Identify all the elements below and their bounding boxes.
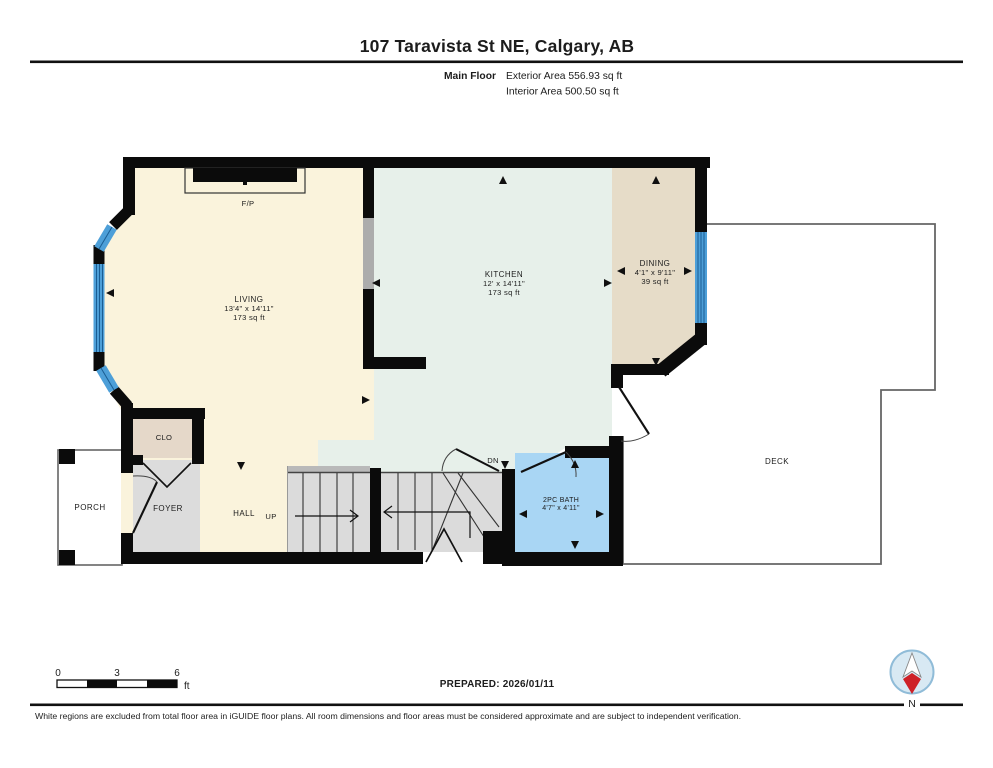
dn-label: DN [487,456,499,465]
living-area: 173 sq ft [233,313,265,322]
scale-tick-0: 0 [55,668,61,679]
fireplace-label: F/P [242,199,255,208]
deck-door-swing [619,387,649,441]
deck-label: DECK [765,457,789,466]
compass-north-label: N [908,698,916,710]
kitchen-dims: 12' x 14'11" [483,279,525,288]
dining-dims: 4'1" x 9'11" [635,268,675,277]
dining-label: DINING [640,259,671,268]
footer-disclaimer: White regions are excluded from total fl… [35,711,741,721]
footer-divider [30,704,963,707]
page-title: 107 Taravista St NE, Calgary, AB [360,36,635,56]
scale-tick-3: 3 [114,668,120,679]
kitchen-label: KITCHEN [485,270,523,279]
bath-label: 2PC BATH [543,497,579,504]
closet-label: CLO [156,433,173,442]
header-divider [30,61,963,64]
living-label: LIVING [235,295,264,304]
living-dims: 13'4" x 14'11" [224,304,274,313]
scale-bar: 0 3 6 ft [55,668,190,692]
prepared-date: PREPARED: 2026/01/11 [440,679,555,690]
dining-area: 39 sq ft [641,277,669,286]
floor-plan-page: 107 Taravista St NE, Calgary, AB Main Fl… [0,0,993,768]
up-label: UP [265,512,276,521]
porch-post [59,449,75,464]
pass-through-opening [363,218,374,289]
dining-window [695,232,707,323]
porch-post [59,550,75,565]
staircase [287,466,502,552]
header: 107 Taravista St NE, Calgary, AB Main Fl… [30,36,963,98]
hall-label: HALL [233,509,255,518]
foyer-label: FOYER [153,504,183,513]
floor-plan: 107 Taravista St NE, Calgary, AB Main Fl… [0,0,993,768]
scale-tick-6: 6 [174,668,180,679]
porch-label: PORCH [74,503,105,512]
exterior-area: Exterior Area 556.93 sq ft [506,71,622,82]
scale-unit: ft [184,681,190,692]
interior-area: Interior Area 500.50 sq ft [506,87,619,98]
floor-label: Main Floor [444,71,496,82]
bath-dims: 4'7" x 4'11" [542,505,580,512]
kitchen-area: 173 sq ft [488,288,520,297]
compass-rose-icon: N [891,651,934,711]
